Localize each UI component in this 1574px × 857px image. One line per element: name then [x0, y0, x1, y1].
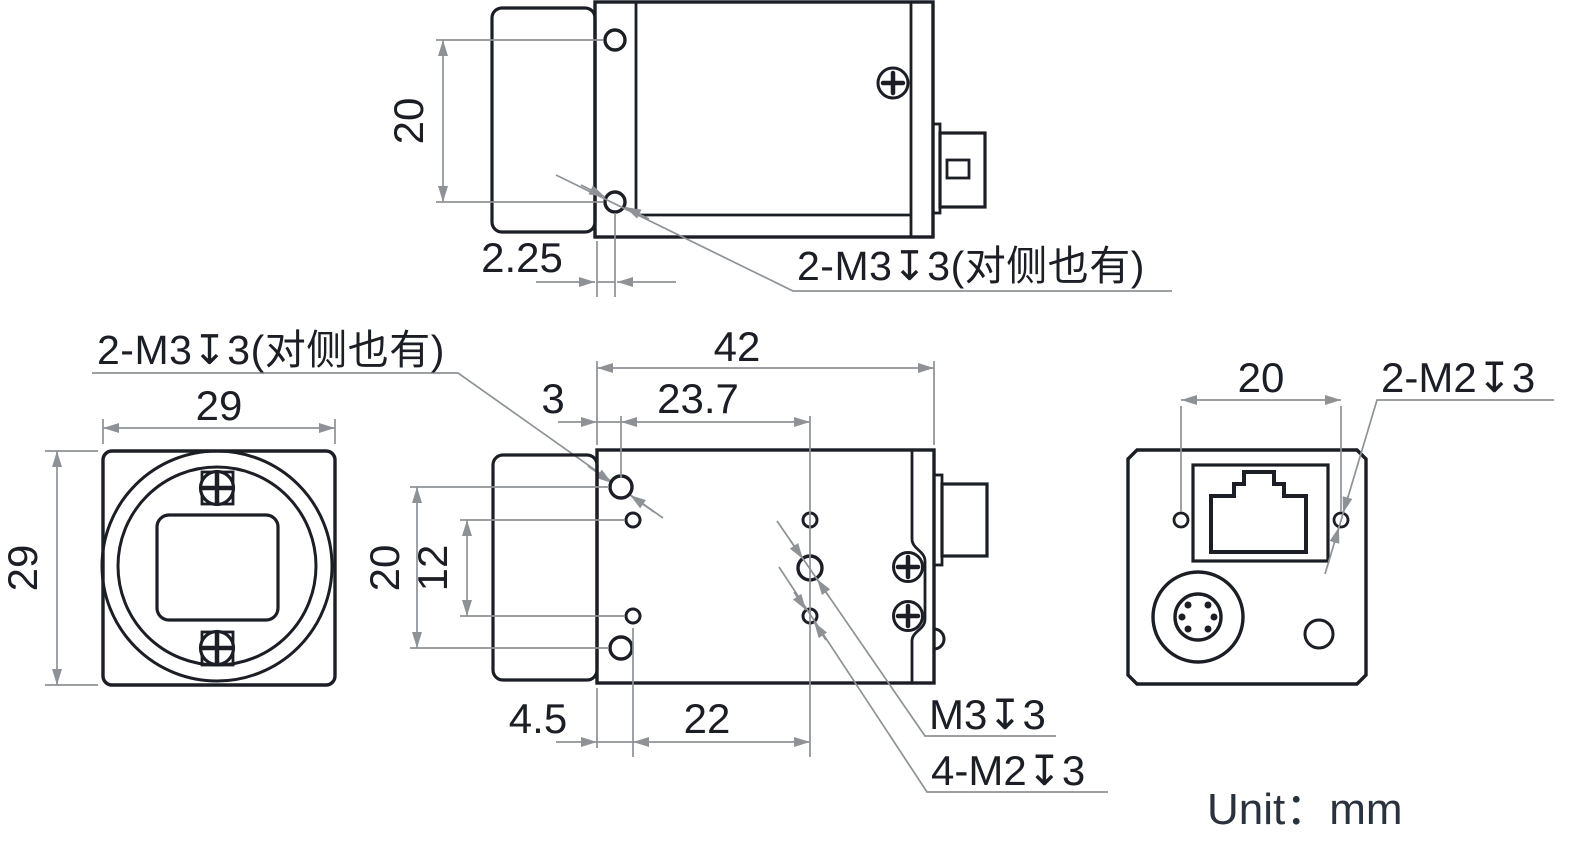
dim-label-front-width: 29 [196, 382, 243, 429]
screw-front-top [201, 472, 234, 505]
dim-label-back-20: 20 [1238, 354, 1285, 401]
leader-side-m2: 4-M2↧3 [779, 567, 1108, 794]
m3-hole-top-2 [605, 192, 625, 212]
dim-label-side-12: 12 [409, 545, 456, 592]
connector-pin [1205, 602, 1212, 609]
power-connector [1153, 572, 1243, 662]
screw-side-1 [894, 553, 923, 582]
m3-hole-side-bottom [610, 637, 632, 659]
dim-top-20: 20 [385, 40, 603, 202]
dim-label-side-23-7: 23.7 [657, 375, 739, 422]
dim-label-side-4-5: 4.5 [509, 695, 567, 742]
screw-side-2 [894, 602, 923, 631]
dim-label-side-20: 20 [361, 545, 408, 592]
screw-top-view [878, 68, 908, 98]
lens-mount-side [493, 455, 597, 680]
connector-pin [1185, 602, 1192, 609]
m3-hole-top-1 [605, 30, 625, 50]
dim-side-20: 20 [361, 487, 609, 648]
rj45-port [1193, 465, 1328, 561]
dim-side-42: 42 [597, 323, 934, 445]
thread-label-side-m2: 4-M2↧3 [931, 747, 1085, 794]
back-view: 20 2-M2↧3 [1128, 354, 1554, 684]
dimension-drawing-svg: 20 2.25 2-M3↧3(对侧也有) [0, 0, 1574, 857]
m2-hole-back-left [1174, 513, 1188, 527]
dim-label-side-42: 42 [714, 323, 761, 370]
sensor-window [157, 515, 278, 620]
body-panel-lines-top [636, 3, 911, 236]
screw-front-bottom [201, 632, 234, 666]
io-connector-side [934, 475, 987, 565]
connector-pin [1179, 614, 1186, 621]
dim-label-top-2-25: 2.25 [481, 234, 563, 281]
thread-label-front: 2-M3↧3(对侧也有) [97, 327, 445, 373]
m2-hole-side-bottom [626, 609, 640, 623]
connector-pin [1205, 626, 1212, 633]
dim-side-3-and-23-7: 3 23.7 [541, 375, 810, 757]
dim-front-height-29: 29 [0, 451, 98, 685]
dim-label-side-22: 22 [684, 695, 731, 742]
side-view: 42 3 23.7 20 12 4.5 22 [361, 323, 1108, 794]
thread-label-back: 2-M2↧3 [1381, 354, 1535, 401]
io-connector-top [933, 124, 985, 213]
thread-label-side-m3: M3↧3 [929, 691, 1046, 738]
top-view: 20 2.25 2-M3↧3(对侧也有) [385, 2, 1172, 297]
dim-side-12: 12 [409, 520, 625, 616]
camera-body-top [595, 2, 933, 237]
led-indicator [1305, 620, 1333, 648]
dim-front-width-29: 29 [103, 382, 335, 444]
leader-top-m3: 2-M3↧3(对侧也有) [556, 175, 1172, 291]
dim-top-2-25: 2.25 [481, 213, 676, 297]
dim-label-top-20: 20 [385, 98, 432, 145]
camera-body-side [597, 450, 934, 683]
unit-note: Unit：mm [1207, 785, 1403, 834]
leader-back-m2: 2-M2↧3 [1325, 354, 1554, 574]
connector-pin [1185, 626, 1192, 633]
dim-label-side-3: 3 [541, 375, 564, 422]
dim-back-20: 20 [1181, 354, 1341, 512]
thread-label-top: 2-M3↧3(对侧也有) [797, 243, 1145, 289]
drawing-canvas: 20 2.25 2-M3↧3(对侧也有) [0, 0, 1574, 857]
camera-body-back [1128, 450, 1366, 684]
m2-hole-side-top [626, 513, 640, 527]
m3-hole-side-top [610, 476, 632, 498]
connector-pin [1211, 614, 1218, 621]
lens-mount-top [492, 8, 595, 232]
dim-label-front-height: 29 [0, 545, 46, 592]
